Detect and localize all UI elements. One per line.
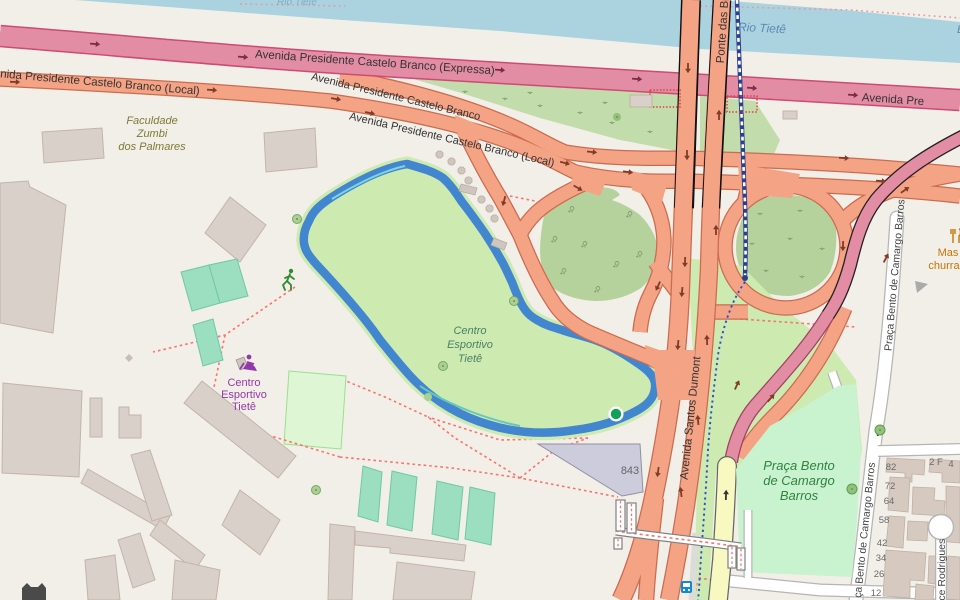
svg-text:Centro: Centro	[453, 325, 486, 337]
svg-text:Tietê: Tietê	[232, 401, 256, 413]
svg-text:Esportivo: Esportivo	[221, 389, 267, 401]
svg-text:Esportivo: Esportivo	[447, 339, 493, 351]
svg-text:de Camargo: de Camargo	[763, 473, 835, 488]
svg-text:26: 26	[874, 569, 885, 580]
svg-text:Rio Tietê: Rio Tietê	[738, 20, 787, 37]
svg-text:42: 42	[877, 538, 888, 549]
svg-text:Zumbi: Zumbi	[136, 128, 168, 140]
svg-text:dos Palmares: dos Palmares	[118, 141, 186, 153]
svg-text:64: 64	[884, 496, 895, 507]
svg-text:Barros: Barros	[780, 488, 819, 503]
svg-text:churra: churra	[928, 260, 960, 272]
svg-text:2 F: 2 F	[929, 457, 943, 468]
svg-text:Centro: Centro	[227, 377, 260, 389]
svg-text:72: 72	[885, 481, 896, 492]
svg-text:4: 4	[948, 459, 953, 470]
svg-text:Faculdade: Faculdade	[126, 115, 177, 127]
svg-text:Rio Tietê: Rio Tietê	[277, 0, 317, 8]
svg-text:34: 34	[876, 553, 887, 564]
svg-text:Mas: Mas	[938, 247, 959, 259]
svg-text:82: 82	[886, 462, 897, 473]
svg-text:Praça Bento: Praça Bento	[763, 458, 835, 473]
svg-text:58: 58	[879, 515, 890, 526]
svg-text:Tietê: Tietê	[458, 353, 482, 365]
svg-text:12: 12	[871, 588, 882, 599]
svg-text:843: 843	[621, 465, 639, 477]
svg-text:lice Rodrigues: lice Rodrigues	[936, 539, 948, 600]
